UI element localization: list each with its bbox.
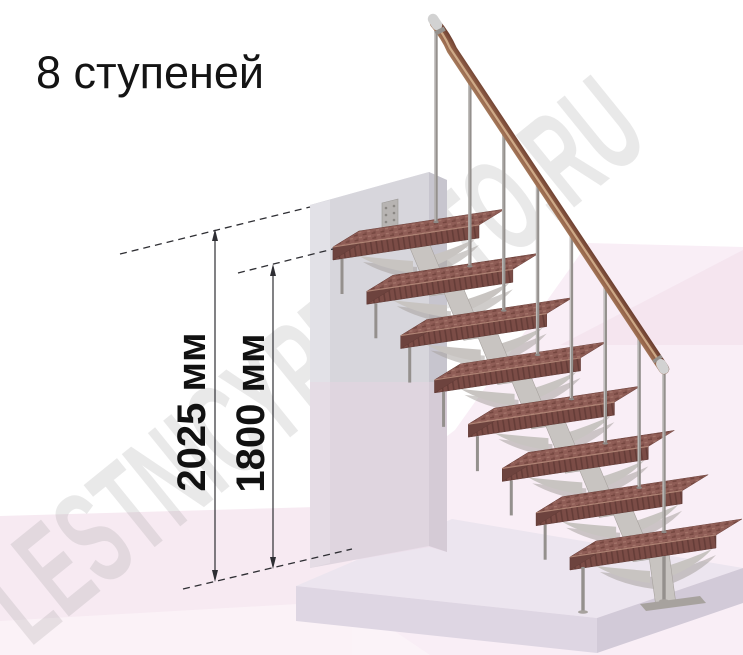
support-leg-base (578, 610, 588, 614)
page-title: 8 ступеней (36, 47, 264, 98)
baluster-base (661, 531, 667, 533)
handrail-ferrule-top (439, 29, 441, 33)
staircase-diagram: LESTNICYPROSTO.RU (0, 0, 743, 655)
support-leg-base (659, 599, 669, 603)
plate-hole (393, 205, 396, 208)
baluster-base (433, 221, 439, 223)
baluster-base (636, 487, 642, 489)
wall-pink-tint (310, 382, 447, 568)
handrail-cap-bottom (661, 364, 664, 369)
plate-hole (385, 221, 388, 224)
plate-hole (385, 207, 388, 210)
plate-hole (393, 219, 396, 222)
baluster-base (467, 265, 473, 267)
illustration-canvas: LESTNICYPROSTO.RU (0, 0, 743, 655)
baluster-base (569, 398, 575, 400)
dimension-label-total-height: 2025 мм (170, 332, 214, 491)
dimension-label-step-height: 1800 мм (229, 333, 273, 492)
plate-hole (385, 214, 388, 217)
baluster-base (602, 442, 608, 444)
handrail-cap-top (433, 19, 437, 25)
baluster-base (501, 309, 507, 311)
baluster-base (535, 354, 541, 356)
plate-hole (393, 212, 396, 215)
